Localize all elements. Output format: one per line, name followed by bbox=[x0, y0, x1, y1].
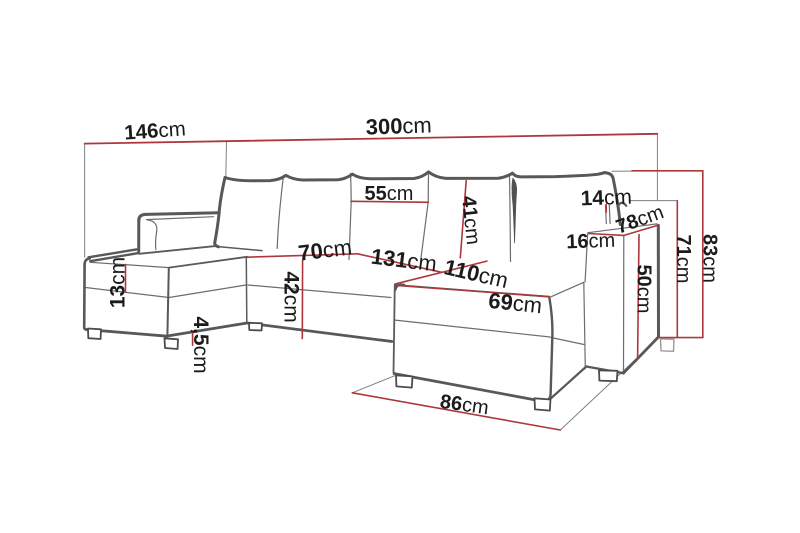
svg-text:300cm: 300cm bbox=[365, 112, 432, 139]
svg-text:71cm: 71cm bbox=[672, 235, 694, 284]
svg-text:16cm: 16cm bbox=[566, 230, 616, 254]
svg-text:83cm: 83cm bbox=[699, 234, 721, 283]
svg-text:14cm: 14cm bbox=[580, 186, 632, 211]
svg-text:42cm: 42cm bbox=[280, 271, 303, 322]
svg-text:4,5cm: 4,5cm bbox=[189, 316, 212, 373]
svg-text:146cm: 146cm bbox=[124, 117, 187, 144]
svg-text:55cm: 55cm bbox=[365, 183, 414, 205]
svg-text:13cm: 13cm bbox=[107, 257, 130, 308]
svg-text:50cm: 50cm bbox=[633, 265, 655, 314]
